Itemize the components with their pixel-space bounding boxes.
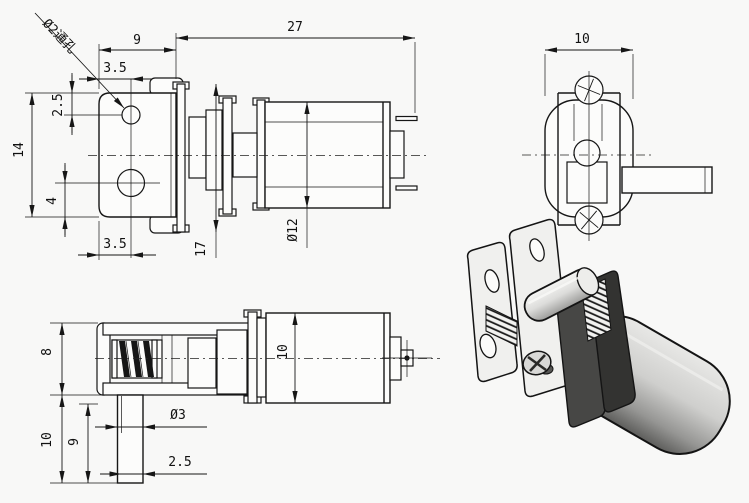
- dim-hole-offset-top: 3.5: [79, 61, 152, 79]
- dim-label: 9: [133, 33, 141, 48]
- dim-flat-length: 9: [67, 404, 88, 483]
- dim-label: 10: [40, 432, 55, 448]
- dim-label: 9: [67, 438, 82, 446]
- gearbox-plate: [223, 98, 232, 214]
- dim-label: 3.5: [103, 237, 126, 252]
- brush-cap: [390, 131, 404, 178]
- dim-label: 27: [287, 20, 303, 35]
- dim-label: Ø12: [286, 218, 301, 241]
- dim-shaft-length: 10: [40, 395, 62, 483]
- dim-hole-offset-bottom: 3.5: [78, 237, 156, 255]
- terminal-pin: [396, 186, 417, 190]
- front-view: 9 27 3.5 2.5 14 4: [12, 13, 428, 260]
- dim-label: 10: [574, 32, 590, 47]
- dim-label: 3.5: [103, 61, 126, 76]
- dim-hole-top-from-top: 2.5: [51, 73, 72, 135]
- iso-view: [468, 220, 747, 471]
- gearbox-plate: [257, 100, 265, 208]
- dim-label: 10: [276, 344, 291, 360]
- dim-bracket-width: 9: [99, 33, 176, 50]
- worm-gear-side: [233, 133, 257, 177]
- dim-label: 17: [194, 241, 209, 257]
- output-shaft-side: [622, 167, 712, 193]
- drawing-page: 9 27 3.5 2.5 14 4: [0, 0, 749, 503]
- terminal-pin: [396, 117, 417, 121]
- gear-stack: [206, 110, 222, 190]
- dim-label: 8: [40, 348, 55, 356]
- end-view: 10: [522, 32, 712, 241]
- dim-total-length: 27: [176, 20, 415, 38]
- dim-shaft-diameter: Ø3: [95, 408, 207, 427]
- dim-label: 2.5: [51, 93, 66, 116]
- drawing-canvas: 9 27 3.5 2.5 14 4: [0, 0, 749, 503]
- dim-label: 14: [12, 142, 27, 158]
- gearbox-plate: [248, 312, 257, 403]
- dim-hole-bottom-from-bottom: 4: [45, 163, 65, 237]
- dim-plate-height: 14: [12, 93, 32, 217]
- dim-label: Ø3: [170, 408, 186, 423]
- worm-gear-end: [567, 162, 607, 203]
- gear-stack: [217, 330, 247, 394]
- dim-end-width: 10: [545, 32, 633, 50]
- gearbox-plate: [177, 84, 185, 232]
- leader-label: Ø2通孔: [39, 16, 79, 56]
- dim-bracket-depth: 8: [40, 323, 62, 395]
- gear-stack: [188, 338, 216, 388]
- gear-ball: [574, 140, 600, 166]
- rear-shaft-dot: [404, 355, 409, 360]
- gear-stack: [189, 117, 206, 178]
- motor-body: [265, 102, 390, 208]
- motor-front-plate: [257, 318, 266, 397]
- dim-flat-width: 2.5: [100, 455, 207, 474]
- dim-label: 2.5: [168, 455, 191, 470]
- worm-gear-top: [112, 340, 162, 378]
- top-view: 8 10 9 Ø3 2.5 10: [40, 310, 440, 483]
- dim-label: 4: [45, 197, 60, 205]
